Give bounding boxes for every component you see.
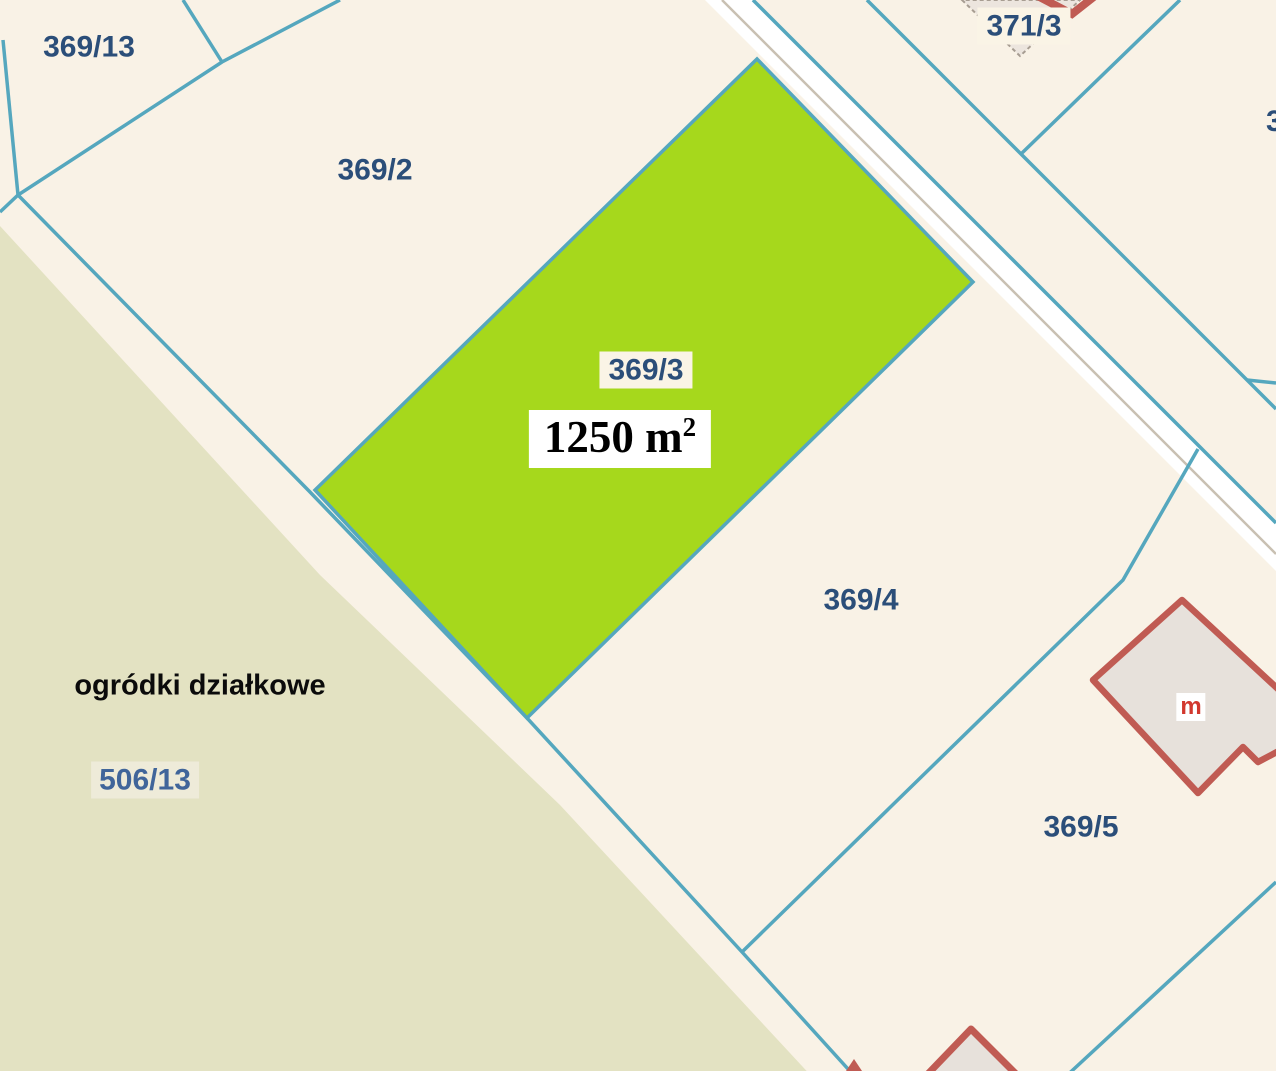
label-area-369-3: 1250 m2 (529, 410, 711, 468)
map-canvas[interactable] (0, 0, 1276, 1080)
map-viewport[interactable]: 369/13 369/2 369/3 1250 m2 369/4 369/5 3… (0, 0, 1276, 1080)
label-building-m: m (1176, 693, 1205, 721)
viewport-bottom-strip (0, 1071, 1276, 1080)
label-parcel-369-2: 369/2 (337, 154, 412, 187)
area-value: 1250 m (544, 412, 683, 462)
label-parcel-371-3: 371/3 (977, 8, 1070, 45)
label-parcel-369-13: 369/13 (43, 31, 135, 64)
label-parcel-369-3: 369/3 (599, 352, 692, 389)
label-parcel-506-13: 506/13 (91, 762, 199, 799)
label-zone-allotments: ogródki działkowe (74, 670, 325, 703)
label-parcel-369-4: 369/4 (823, 584, 898, 617)
label-parcel-369-5: 369/5 (1043, 811, 1118, 844)
label-parcel-right-edge-partial: 3 (1266, 105, 1276, 139)
area-superscript: 2 (683, 412, 697, 442)
